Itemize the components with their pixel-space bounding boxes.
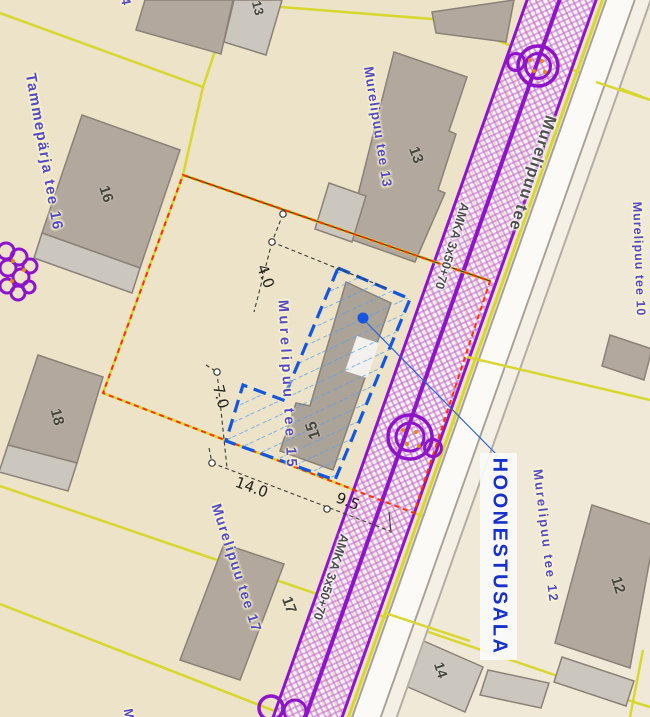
site-plan-map[interactable]: 4.0 7.0 14.0 9.5 xyxy=(0,0,650,717)
dim-14.0: 14.0 xyxy=(233,473,271,501)
utility-symbol-dots xyxy=(10,58,547,448)
dim-9.5: 9.5 xyxy=(333,489,362,514)
utility-symbol-bottom xyxy=(259,696,306,717)
building-area-point xyxy=(358,313,369,324)
parcel-lines-over-road xyxy=(385,82,650,641)
building-area-polygon xyxy=(226,268,410,480)
utility-symbols xyxy=(0,46,558,717)
dim-4.0: 4.0 xyxy=(253,262,278,291)
utility-symbol-cluster-left xyxy=(0,243,37,300)
annotation-layer: 4.0 7.0 14.0 9.5 xyxy=(0,0,650,717)
dim-7.0: 7.0 xyxy=(209,383,233,411)
utility-symbol-top xyxy=(508,46,559,86)
